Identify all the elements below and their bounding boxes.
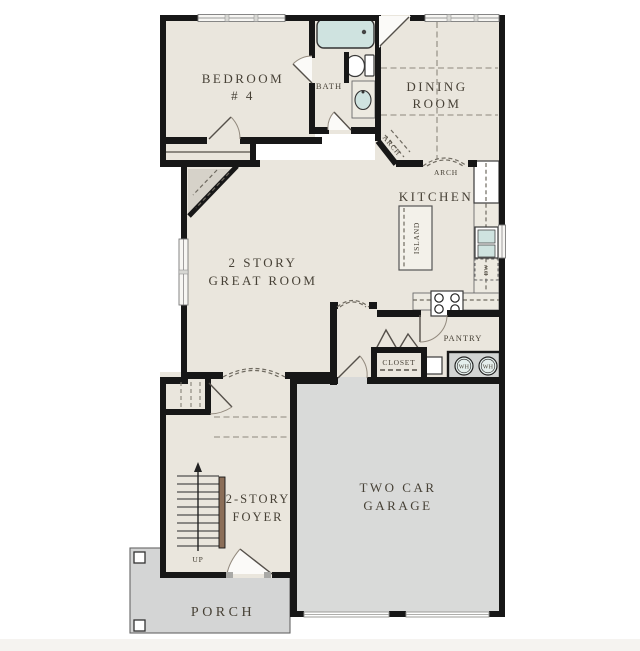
water-heater-area: WH WH: [448, 352, 500, 379]
bedroom-label-line1: BEDROOM: [202, 71, 285, 86]
great-room-label-line2: GREAT ROOM: [209, 273, 318, 288]
arch-dining-label: ARCH: [434, 168, 458, 177]
stair-rail: [219, 477, 225, 548]
toilet-icon: [346, 55, 375, 77]
closet-label: CLOSET: [382, 358, 415, 367]
foyer-label-line1: 2-STORY: [226, 492, 290, 506]
refrigerator-icon: [474, 161, 499, 203]
porch-label: PORCH: [191, 605, 255, 620]
garage-label-line1: TWO CAR: [359, 480, 436, 495]
kitchen-sink-icon: [475, 227, 498, 258]
kitchen-island: ISLAND: [399, 206, 432, 270]
hall-floor: [330, 302, 377, 385]
stairs-up-label: UP: [192, 555, 203, 564]
foyer-label-line2: FOYER: [233, 510, 284, 524]
great-room-window-icon: [179, 239, 188, 305]
tub-drain-icon: [362, 30, 366, 34]
kitchen-window-icon: [499, 225, 506, 258]
bath-label: BATH: [316, 81, 342, 91]
great-room-label-line1: 2 STORY: [229, 255, 298, 270]
pantry-label: PANTRY: [444, 333, 483, 343]
garage-door-icon: [406, 612, 489, 617]
floor-plan-page: DW ISLAND: [0, 0, 640, 651]
page-bottom-strip: [0, 639, 640, 651]
garage-floor: [290, 377, 505, 617]
bedroom-window-icon: [198, 15, 285, 22]
garage-door-icon: [304, 612, 389, 617]
floor-plan-drawing: DW ISLAND: [0, 0, 640, 651]
water-heater-label: WH: [459, 365, 470, 371]
vanity-sink-icon: [352, 81, 375, 118]
dishwasher-label: DW: [484, 265, 490, 276]
dining-label-line1: DINING: [406, 79, 467, 94]
porch-post-icon: [134, 552, 145, 563]
dining-label-line2: ROOM: [412, 96, 461, 111]
porch-post-icon: [134, 620, 145, 631]
kitchen-label: KITCHEN: [399, 189, 474, 204]
island-label: ISLAND: [412, 222, 421, 254]
bedroom-label-line2: # 4: [231, 88, 255, 103]
dining-window-icon: [425, 15, 499, 22]
water-heater-label: WH: [483, 365, 494, 371]
garage-label-line2: GARAGE: [363, 498, 432, 513]
